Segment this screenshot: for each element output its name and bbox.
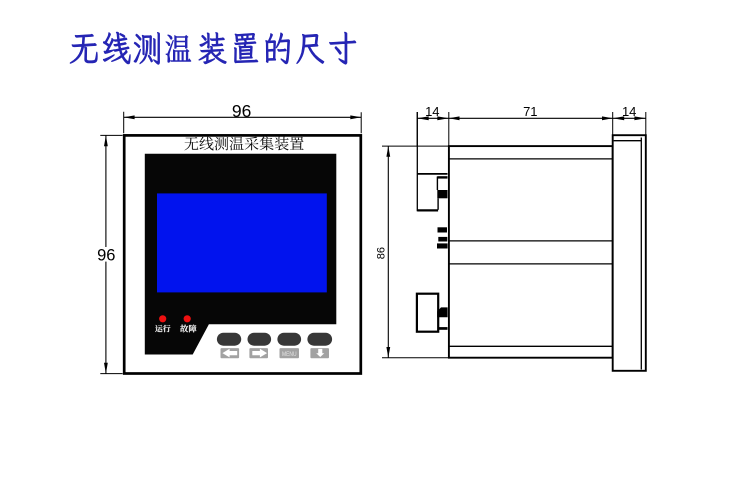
svg-text:96: 96: [232, 101, 251, 121]
svg-text:86: 86: [375, 247, 387, 259]
svg-text:71: 71: [523, 104, 537, 119]
svg-text:14: 14: [622, 104, 636, 119]
svg-text:96: 96: [97, 246, 115, 264]
svg-text:14: 14: [425, 104, 439, 119]
svg-text:MENU: MENU: [282, 351, 297, 358]
